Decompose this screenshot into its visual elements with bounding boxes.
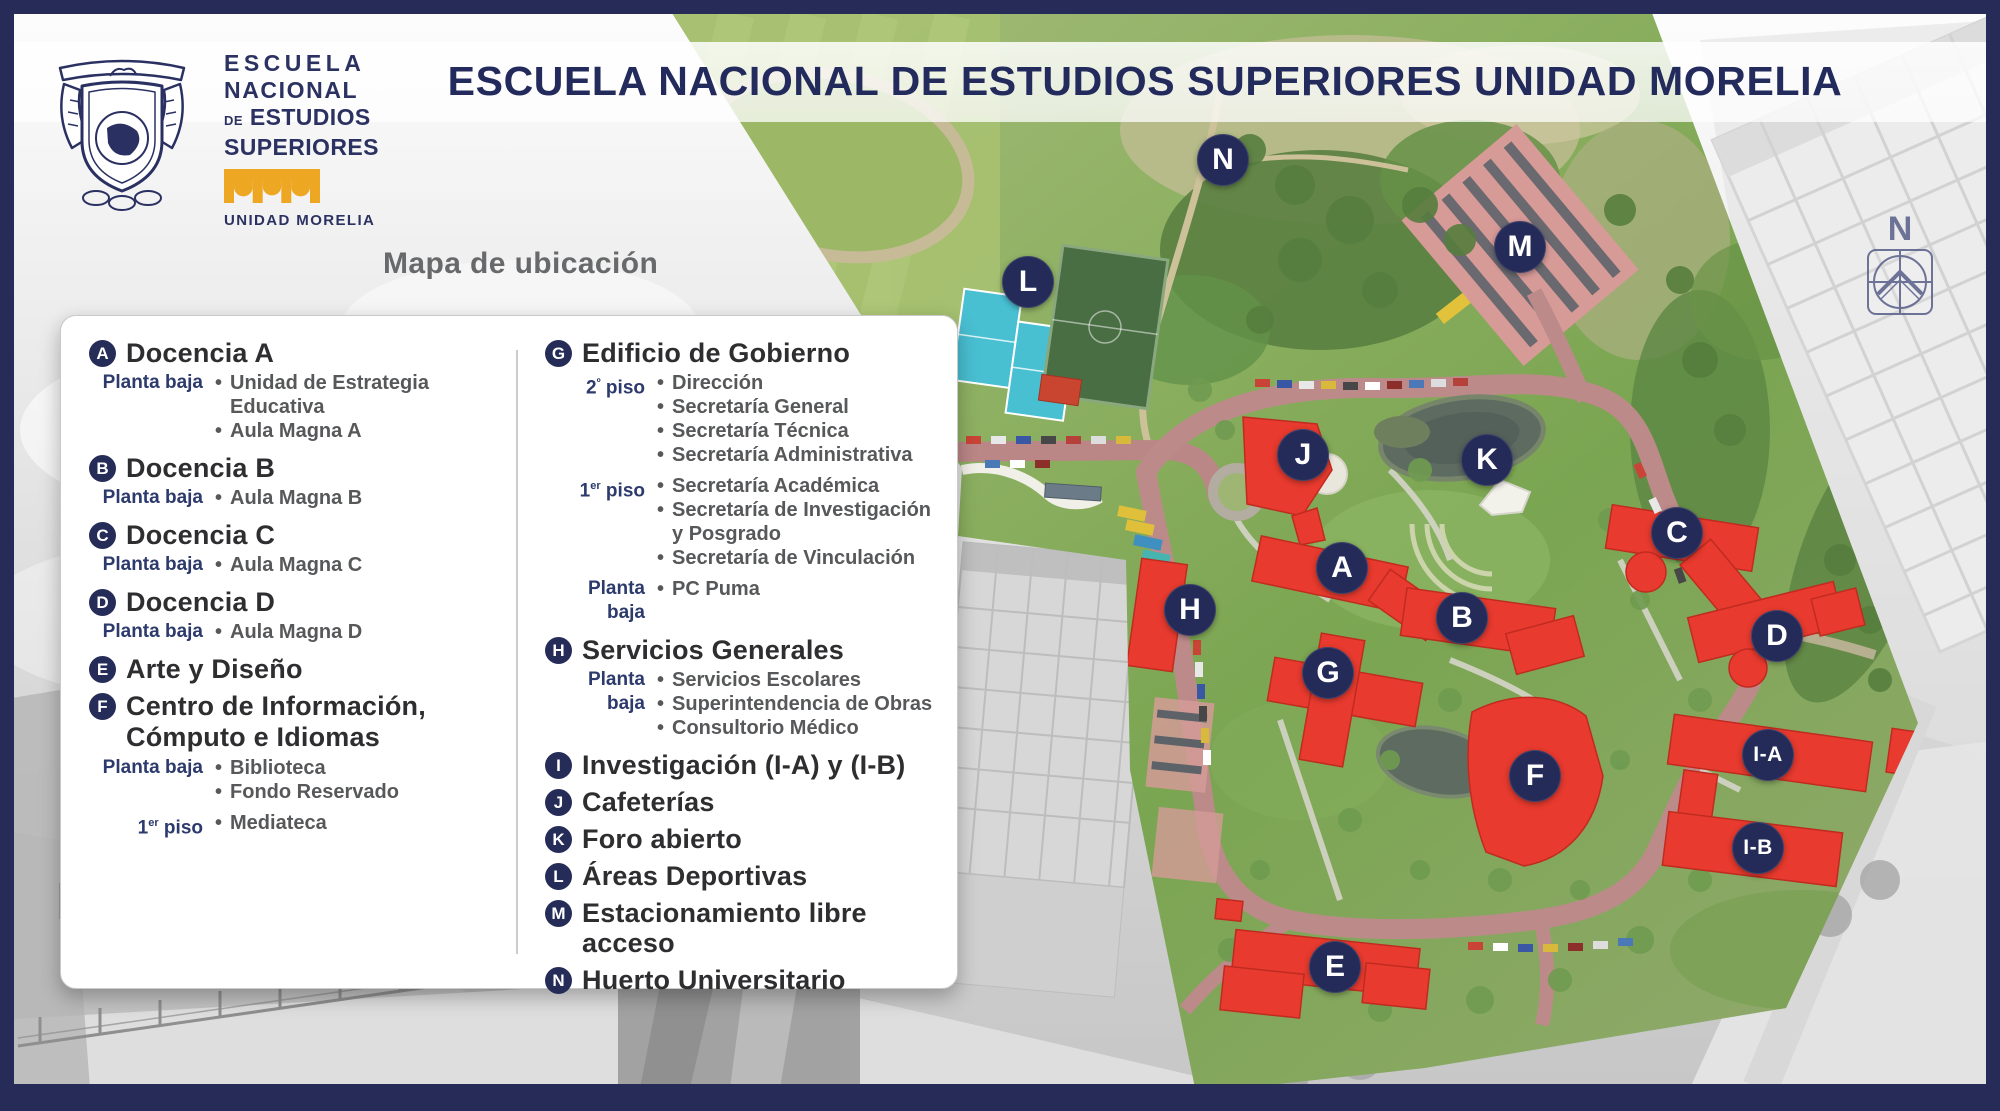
legend-panel: ADocencia APlanta baja•Unidad de Estrate… bbox=[60, 315, 958, 989]
map-marker-i-b: I-B bbox=[1732, 822, 1784, 874]
floor-item-label: Unidad de Estrategia Educativa bbox=[230, 371, 509, 419]
map-marker-a: A bbox=[1316, 542, 1368, 594]
floor-items: •Aula Magna B bbox=[215, 486, 509, 510]
legend-entry-f: FCentro de Información,Cómputo e Idiomas… bbox=[89, 691, 509, 840]
legend-column-left: ADocencia APlanta baja•Unidad de Estrate… bbox=[89, 338, 509, 850]
frame-bottom-bar bbox=[0, 1084, 2000, 1111]
map-marker-g: G bbox=[1302, 647, 1354, 699]
legend-entry-i: IInvestigación (I-A) y (I-B) bbox=[545, 750, 945, 780]
bullet-icon: • bbox=[657, 419, 664, 443]
legend-badge-l: L bbox=[545, 863, 572, 890]
floor-label: Planta baja bbox=[89, 756, 215, 804]
legend-floor-group: Planta baja•Servicios Escolares•Superint… bbox=[545, 668, 945, 740]
legend-entry-l: LÁreas Deportivas bbox=[545, 861, 945, 891]
map-subtitle: Mapa de ubicación bbox=[383, 247, 658, 281]
legend-entry-k: KForo abierto bbox=[545, 824, 945, 854]
floor-item-label: Aula Magna D bbox=[230, 620, 362, 644]
legend-badge-m: M bbox=[545, 900, 572, 927]
legend-entry-title: Servicios Generales bbox=[582, 635, 844, 665]
legend-entry-a: ADocencia APlanta baja•Unidad de Estrate… bbox=[89, 338, 509, 443]
floor-item: •Secretaría de Vinculación bbox=[657, 546, 945, 570]
floor-label: Planta baja bbox=[545, 577, 657, 625]
bullet-icon: • bbox=[215, 371, 222, 419]
bullet-icon: • bbox=[657, 371, 664, 395]
map-marker-c: C bbox=[1651, 507, 1703, 559]
map-marker-m: M bbox=[1494, 221, 1546, 273]
floor-item-label: Aula Magna C bbox=[230, 553, 362, 577]
bullet-icon: • bbox=[657, 474, 664, 498]
legend-entry-title: Foro abierto bbox=[582, 824, 742, 854]
legend-floor-group: Planta baja•Biblioteca•Fondo Reservado bbox=[89, 756, 509, 804]
legend-entry-head: KForo abierto bbox=[545, 824, 945, 854]
legend-entry-title-line2: Cómputo e Idiomas bbox=[126, 721, 509, 753]
legend-entry-h: HServicios GeneralesPlanta baja•Servicio… bbox=[545, 635, 945, 740]
legend-entry-head: CDocencia C bbox=[89, 520, 509, 550]
floor-item-label: Consultorio Médico bbox=[672, 716, 859, 740]
aqueduct-icon bbox=[224, 169, 320, 203]
floor-item-label: Servicios Escolares bbox=[672, 668, 861, 692]
legend-entry-head: IInvestigación (I-A) y (I-B) bbox=[545, 750, 945, 780]
floor-item-label: Secretaría de Vinculación bbox=[672, 546, 915, 570]
bullet-icon: • bbox=[215, 811, 222, 835]
floor-items: •Unidad de Estrategia Educativa•Aula Mag… bbox=[215, 371, 509, 443]
legend-entry-title: Arte y Diseño bbox=[126, 654, 303, 684]
legend-entry-head: LÁreas Deportivas bbox=[545, 861, 945, 891]
bullet-icon: • bbox=[215, 486, 222, 510]
legend-badge-g: G bbox=[545, 340, 572, 367]
legend-entry-head: EArte y Diseño bbox=[89, 654, 509, 684]
legend-entry-head: ADocencia A bbox=[89, 338, 509, 368]
legend-entry-head: FCentro de Información, bbox=[89, 691, 509, 721]
school-name-line: ESCUELA bbox=[224, 50, 404, 77]
map-marker-e: E bbox=[1309, 941, 1361, 993]
floor-items: •Dirección•Secretaría General•Secretaría… bbox=[657, 371, 945, 467]
floor-items: •Secretaría Académica•Secretaría de Inve… bbox=[657, 474, 945, 570]
legend-entry-c: CDocencia CPlanta baja•Aula Magna C bbox=[89, 520, 509, 577]
floor-label: Planta baja bbox=[89, 553, 215, 577]
legend-entry-d: DDocencia DPlanta baja•Aula Magna D bbox=[89, 587, 509, 644]
legend-entry-title: Cafeterías bbox=[582, 787, 715, 817]
floor-item-label: Dirección bbox=[672, 371, 763, 395]
legend-entry-title: Docencia C bbox=[126, 520, 275, 550]
bullet-icon: • bbox=[215, 620, 222, 644]
legend-floor-group: Planta baja•Aula Magna B bbox=[89, 486, 509, 510]
legend-floor-group: Planta baja•Aula Magna C bbox=[89, 553, 509, 577]
floor-label: 1er piso bbox=[89, 811, 215, 840]
legend-divider bbox=[516, 350, 518, 954]
legend-badge-b: B bbox=[89, 455, 116, 482]
map-marker-h: H bbox=[1164, 584, 1216, 636]
floor-items: •Servicios Escolares•Superintendencia de… bbox=[657, 668, 945, 740]
floor-label: 1er piso bbox=[545, 474, 657, 570]
floor-items: •PC Puma bbox=[657, 577, 945, 625]
floor-label: Planta baja bbox=[545, 668, 657, 740]
floor-item-label: Secretaría General bbox=[672, 395, 849, 419]
bullet-icon: • bbox=[657, 668, 664, 692]
grayscale-grid-building bbox=[925, 542, 1153, 997]
bullet-icon: • bbox=[215, 553, 222, 577]
legend-entry-head: BDocencia B bbox=[89, 453, 509, 483]
floor-item-label: Aula Magna B bbox=[230, 486, 362, 510]
floor-item-label: Fondo Reservado bbox=[230, 780, 399, 804]
floor-item: •Aula Magna D bbox=[215, 620, 509, 644]
legend-entry-title: Docencia D bbox=[126, 587, 275, 617]
map-marker-k: K bbox=[1461, 434, 1513, 486]
legend-entry-head: MEstacionamiento libre acceso bbox=[545, 898, 945, 958]
legend-entry-title: Edificio de Gobierno bbox=[582, 338, 850, 368]
legend-entry-title: Estacionamiento libre acceso bbox=[582, 898, 945, 958]
floor-label: Planta baja bbox=[89, 620, 215, 644]
floor-item: •Aula Magna A bbox=[215, 419, 509, 443]
legend-badge-h: H bbox=[545, 637, 572, 664]
floor-items: •Aula Magna D bbox=[215, 620, 509, 644]
legend-entry-head: DDocencia D bbox=[89, 587, 509, 617]
floor-item: •PC Puma bbox=[657, 577, 945, 601]
map-marker-l: L bbox=[1002, 256, 1054, 308]
map-marker-b: B bbox=[1436, 592, 1488, 644]
map-marker-j: J bbox=[1277, 429, 1329, 481]
map-marker-f: F bbox=[1509, 750, 1561, 802]
bullet-icon: • bbox=[215, 756, 222, 780]
bullet-icon: • bbox=[215, 419, 222, 443]
floor-items: •Biblioteca•Fondo Reservado bbox=[215, 756, 509, 804]
legend-entry-m: MEstacionamiento libre acceso bbox=[545, 898, 945, 958]
legend-entry-head: HServicios Generales bbox=[545, 635, 945, 665]
legend-entry-head: NHuerto Universitario bbox=[545, 965, 945, 995]
legend-badge-j: J bbox=[545, 789, 572, 816]
floor-item-label: Mediateca bbox=[230, 811, 327, 835]
school-name-line: SUPERIORES bbox=[224, 134, 404, 161]
floor-item-label: PC Puma bbox=[672, 577, 760, 601]
bullet-icon: • bbox=[215, 780, 222, 804]
legend-entry-title: Áreas Deportivas bbox=[582, 861, 807, 891]
floor-label: Planta baja bbox=[89, 486, 215, 510]
legend-entry-e: EArte y Diseño bbox=[89, 654, 509, 684]
legend-entry-g: GEdificio de Gobierno2º piso•Dirección•S… bbox=[545, 338, 945, 625]
legend-entry-n: NHuerto Universitario bbox=[545, 965, 945, 995]
floor-item-label: Biblioteca bbox=[230, 756, 326, 780]
floor-item: •Secretaría General bbox=[657, 395, 945, 419]
bullet-icon: • bbox=[657, 443, 664, 467]
legend-floor-group: Planta baja•PC Puma bbox=[545, 577, 945, 625]
floor-item: •Secretaría Académica bbox=[657, 474, 945, 498]
floor-item: •Unidad de Estrategia Educativa bbox=[215, 371, 509, 419]
legend-entry-title: Huerto Universitario bbox=[582, 965, 846, 995]
legend-badge-n: N bbox=[545, 967, 572, 994]
legend-badge-i: I bbox=[545, 752, 572, 779]
compass-rose: N bbox=[1862, 212, 1938, 316]
floor-item: •Secretaría Técnica bbox=[657, 419, 945, 443]
floor-item: •Superintendencia de Obras bbox=[657, 692, 945, 716]
legend-floor-group: 1er piso•Secretaría Académica•Secretaría… bbox=[545, 474, 945, 570]
floor-item: •Dirección bbox=[657, 371, 945, 395]
legend-floor-group: Planta baja•Unidad de Estrategia Educati… bbox=[89, 371, 509, 443]
unam-crest-icon bbox=[52, 46, 192, 211]
legend-entry-title: Docencia B bbox=[126, 453, 275, 483]
floor-label: Planta baja bbox=[89, 371, 215, 443]
unit-name: UNIDAD MORELIA bbox=[224, 212, 404, 229]
floor-item: •Consultorio Médico bbox=[657, 716, 945, 740]
compass-north-label: N bbox=[1862, 212, 1938, 246]
floor-item: •Aula Magna B bbox=[215, 486, 509, 510]
legend-entry-b: BDocencia BPlanta baja•Aula Magna B bbox=[89, 453, 509, 510]
floor-item-label: Superintendencia de Obras bbox=[672, 692, 932, 716]
floor-items: •Mediateca bbox=[215, 811, 509, 840]
legend-floor-group: 2º piso•Dirección•Secretaría General•Sec… bbox=[545, 371, 945, 467]
floor-item: •Secretaría Administrativa bbox=[657, 443, 945, 467]
school-name-line: NACIONAL bbox=[224, 77, 404, 104]
legend-entry-j: JCafeterías bbox=[545, 787, 945, 817]
floor-item: •Biblioteca bbox=[215, 756, 509, 780]
legend-entry-title: Docencia A bbox=[126, 338, 274, 368]
legend-badge-a: A bbox=[89, 340, 116, 367]
legend-entry-title: Investigación (I-A) y (I-B) bbox=[582, 750, 905, 780]
page-title: ESCUELA NACIONAL DE ESTUDIOS SUPERIORES … bbox=[350, 58, 1940, 105]
legend-badge-e: E bbox=[89, 656, 116, 683]
campus-map-poster: ESCUELA NACIONAL DE ESTUDIOS SUPERIORES … bbox=[0, 0, 2000, 1111]
floor-label: 2º piso bbox=[545, 371, 657, 467]
floor-item-label: Secretaría de Investigación y Posgrado bbox=[672, 498, 945, 546]
compass-icon bbox=[1866, 248, 1934, 316]
floor-item-label: Secretaría Académica bbox=[672, 474, 879, 498]
map-marker-d: D bbox=[1751, 610, 1803, 662]
floor-item: •Mediateca bbox=[215, 811, 509, 835]
school-name-block: ESCUELA NACIONAL DE ESTUDIOS SUPERIORES … bbox=[224, 50, 404, 229]
floor-item: •Fondo Reservado bbox=[215, 780, 509, 804]
bullet-icon: • bbox=[657, 498, 664, 546]
floor-item: •Aula Magna C bbox=[215, 553, 509, 577]
legend-entry-title: Centro de Información, bbox=[126, 691, 426, 721]
floor-item-label: Secretaría Técnica bbox=[672, 419, 849, 443]
legend-floor-group: 1er piso•Mediateca bbox=[89, 811, 509, 840]
floor-item: •Secretaría de Investigación y Posgrado bbox=[657, 498, 945, 546]
legend-badge-d: D bbox=[89, 589, 116, 616]
bullet-icon: • bbox=[657, 546, 664, 570]
legend-entry-head: JCafeterías bbox=[545, 787, 945, 817]
map-marker-n: N bbox=[1197, 134, 1249, 186]
floor-items: •Aula Magna C bbox=[215, 553, 509, 577]
bullet-icon: • bbox=[657, 395, 664, 419]
floor-item: •Servicios Escolares bbox=[657, 668, 945, 692]
floor-item-label: Secretaría Administrativa bbox=[672, 443, 912, 467]
bullet-icon: • bbox=[657, 716, 664, 740]
legend-badge-f: F bbox=[89, 693, 116, 720]
legend-column-right: GEdificio de Gobierno2º piso•Dirección•S… bbox=[545, 338, 945, 1002]
bullet-icon: • bbox=[657, 692, 664, 716]
legend-badge-c: C bbox=[89, 522, 116, 549]
floor-item-label: Aula Magna A bbox=[230, 419, 362, 443]
school-name-line: DE ESTUDIOS bbox=[224, 104, 404, 134]
map-marker-i-a: I-A bbox=[1742, 729, 1794, 781]
bullet-icon: • bbox=[657, 577, 664, 601]
legend-entry-head: GEdificio de Gobierno bbox=[545, 338, 945, 368]
legend-badge-k: K bbox=[545, 826, 572, 853]
legend-floor-group: Planta baja•Aula Magna D bbox=[89, 620, 509, 644]
